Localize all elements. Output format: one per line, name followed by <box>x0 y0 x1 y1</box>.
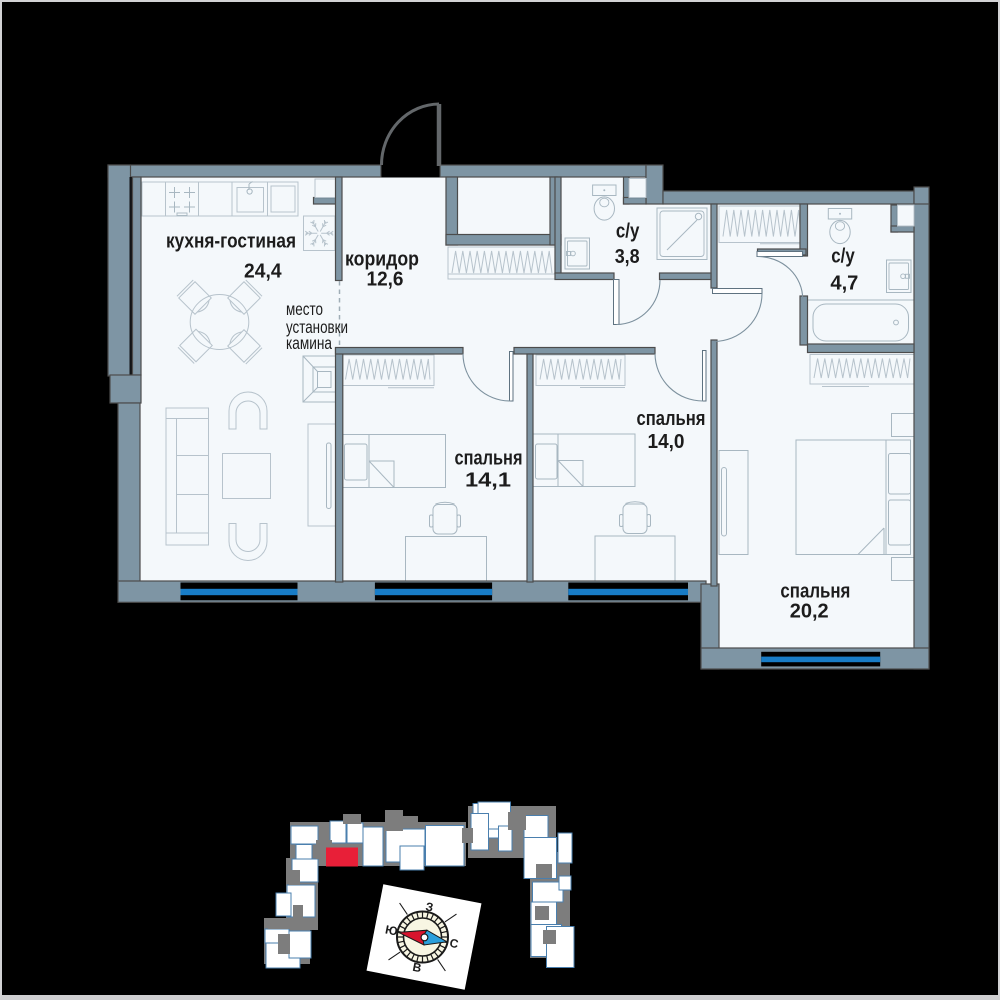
svg-text:Ю: Ю <box>384 922 399 938</box>
svg-text:3,8: 3,8 <box>615 246 640 268</box>
svg-text:спальня: спальня <box>455 448 523 470</box>
svg-text:коридор: коридор <box>345 249 419 271</box>
svg-text:20,2: 20,2 <box>790 601 829 623</box>
svg-text:спальня: спальня <box>780 581 850 603</box>
svg-text:с/у: с/у <box>616 220 640 242</box>
svg-text:24,4: 24,4 <box>244 261 282 283</box>
svg-text:4,7: 4,7 <box>830 273 858 295</box>
svg-text:место: место <box>286 299 323 319</box>
svg-text:спальня: спальня <box>637 408 706 430</box>
svg-text:камина: камина <box>286 333 332 353</box>
svg-text:14,0: 14,0 <box>648 431 685 453</box>
svg-text:12,6: 12,6 <box>367 269 404 291</box>
svg-text:с/у: с/у <box>831 246 855 268</box>
svg-text:кухня-гостиная: кухня-гостиная <box>166 231 296 253</box>
svg-text:14,1: 14,1 <box>465 470 511 492</box>
